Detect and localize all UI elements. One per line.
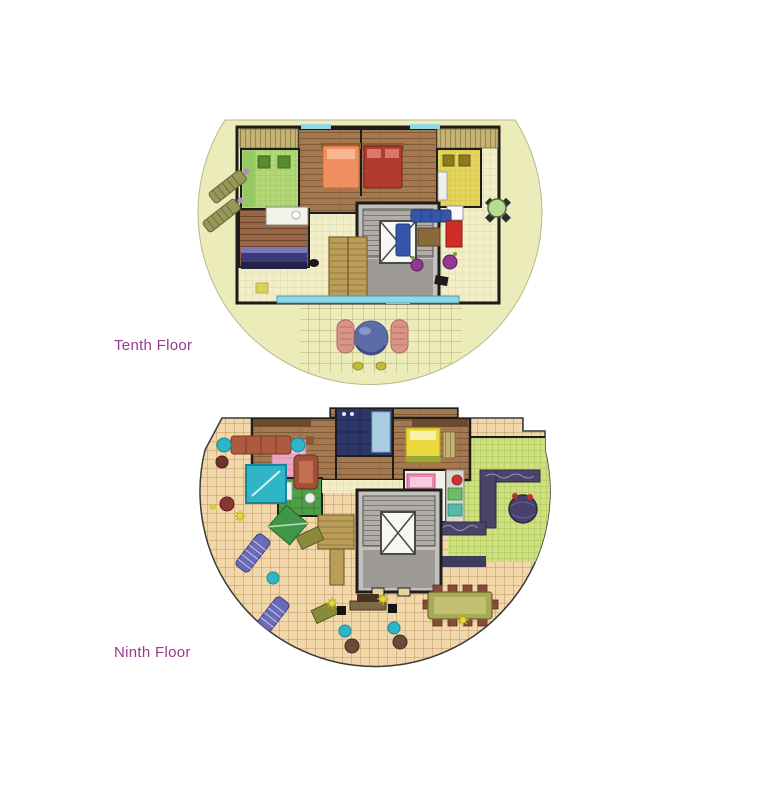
small-bathroom xyxy=(266,207,308,225)
plant-pot xyxy=(345,639,359,653)
floor-plans-graphic xyxy=(0,0,760,786)
shower xyxy=(372,412,390,452)
tenth-floor-label: Tenth Floor xyxy=(114,337,192,354)
spa-tub xyxy=(246,465,286,503)
tenth-floor-plan xyxy=(198,120,542,385)
red-cabinet xyxy=(446,221,462,247)
blue-armchair xyxy=(396,224,410,256)
purple-chair xyxy=(443,255,457,269)
red-bed xyxy=(362,143,404,188)
teal-stool xyxy=(339,625,351,637)
elevator-core-ninth xyxy=(357,490,441,596)
closet xyxy=(437,129,498,148)
plant-pot xyxy=(220,497,234,511)
plant-pot xyxy=(393,635,407,649)
closet xyxy=(240,129,298,148)
closet xyxy=(253,419,311,427)
page: { "page": { "page-bg": "#ffffff" }, "pal… xyxy=(0,0,760,786)
yellow-bed xyxy=(406,428,455,462)
teal-side-table xyxy=(217,438,231,452)
light-fixture xyxy=(537,578,549,590)
purple-chair xyxy=(411,259,423,271)
apartment xyxy=(237,124,499,304)
yellow-object xyxy=(209,504,217,510)
black-table xyxy=(388,604,397,613)
coffee-table xyxy=(418,228,440,246)
terrace-armchair xyxy=(294,455,318,489)
window xyxy=(301,124,331,129)
teal-stool xyxy=(388,622,400,634)
yellow-bathroom xyxy=(437,149,481,207)
wicker-chair xyxy=(509,493,537,523)
yellow-box xyxy=(256,283,268,293)
teal-side-table xyxy=(291,438,305,452)
navy-bathroom xyxy=(336,408,393,456)
plant-pot xyxy=(284,646,296,658)
red-chair xyxy=(452,475,462,485)
green-bathroom xyxy=(241,149,299,209)
ninth-floor-label: Ninth Floor xyxy=(114,644,191,661)
closet xyxy=(412,419,468,427)
ninth-floor-plan xyxy=(200,408,556,667)
window xyxy=(410,124,440,129)
plant-pot xyxy=(216,456,228,468)
lap-pool xyxy=(277,296,459,303)
railing-corner xyxy=(545,580,556,591)
teal-ball xyxy=(267,572,279,584)
orange-bed xyxy=(321,143,361,188)
black-table xyxy=(337,606,346,615)
